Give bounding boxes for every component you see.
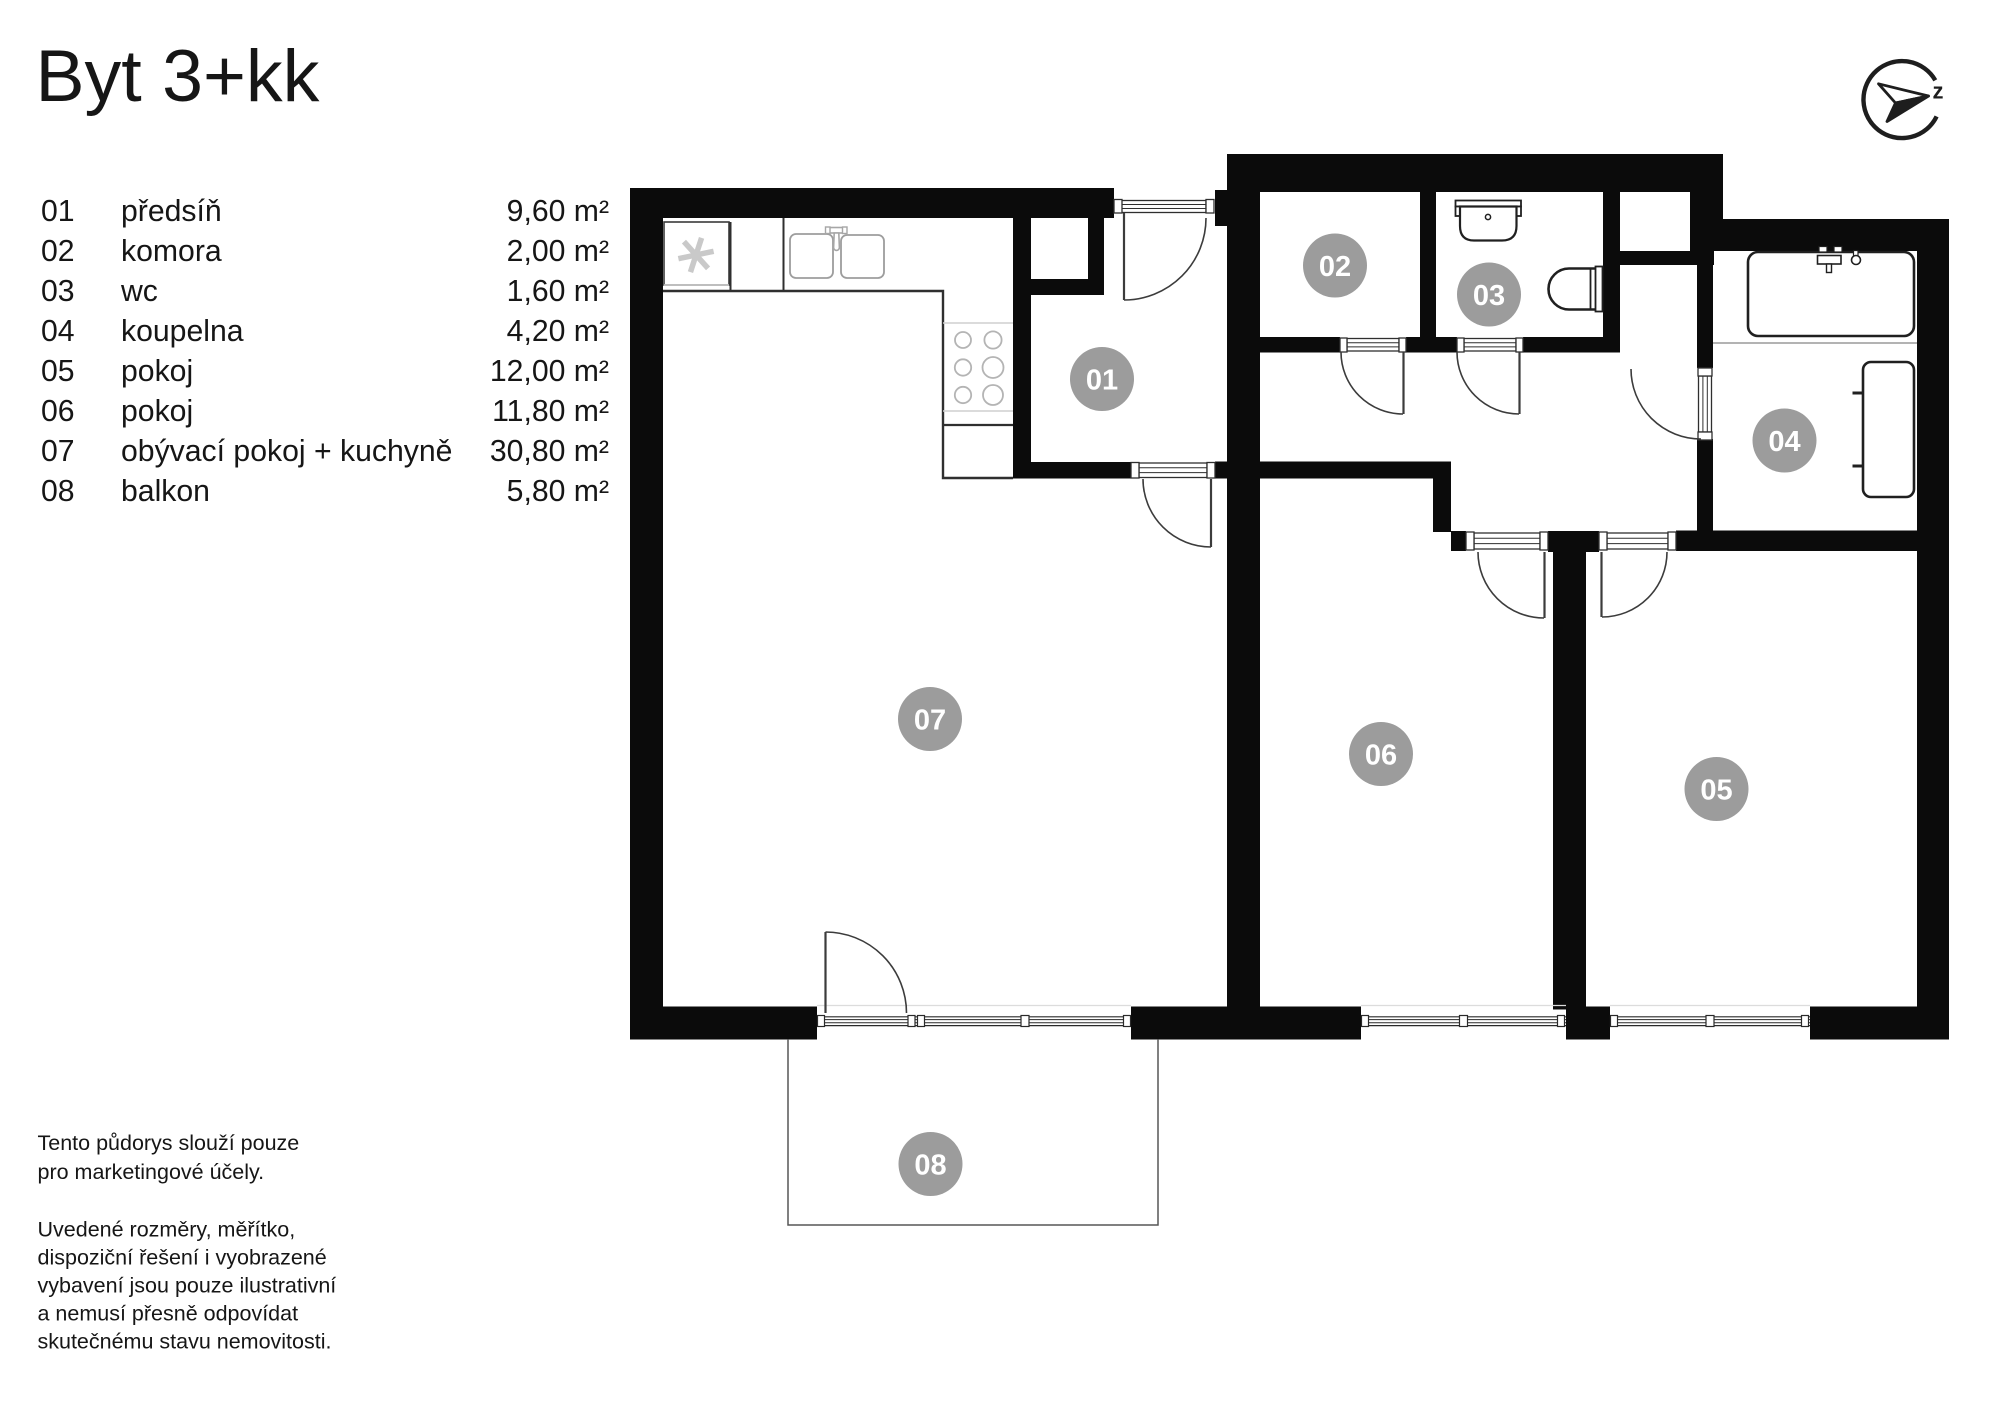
svg-text:předsíň: předsíň <box>121 195 222 228</box>
svg-text:komora: komora <box>121 235 222 268</box>
svg-text:Tento půdorys slouží pouze: Tento půdorys slouží pouze <box>38 1131 300 1155</box>
svg-text:4,20 m²: 4,20 m² <box>507 315 609 348</box>
svg-text:05: 05 <box>1700 775 1732 807</box>
svg-text:wc: wc <box>120 275 158 308</box>
svg-text:07: 07 <box>914 705 946 737</box>
svg-text:2,00 m²: 2,00 m² <box>507 235 609 268</box>
svg-text:vybavení jsou pouze ilustrativ: vybavení jsou pouze ilustrativní <box>38 1274 337 1298</box>
svg-text:06: 06 <box>41 395 75 428</box>
svg-text:05: 05 <box>41 355 75 388</box>
svg-text:30,80 m²: 30,80 m² <box>490 435 609 468</box>
svg-text:1,60 m²: 1,60 m² <box>507 275 609 308</box>
svg-text:5,80 m²: 5,80 m² <box>507 475 609 508</box>
svg-text:Uvedené rozměry, měřítko,: Uvedené rozměry, měřítko, <box>38 1218 296 1242</box>
svg-text:skutečnému stavu nemovitosti.: skutečnému stavu nemovitosti. <box>38 1330 332 1354</box>
svg-text:04: 04 <box>1768 426 1800 458</box>
svg-text:12,00 m²: 12,00 m² <box>490 355 609 388</box>
svg-text:obývací pokoj + kuchyně: obývací pokoj + kuchyně <box>121 435 452 468</box>
svg-text:a nemusí přesně odpovídat: a nemusí přesně odpovídat <box>38 1302 299 1326</box>
svg-text:08: 08 <box>914 1150 946 1182</box>
svg-text:02: 02 <box>1319 251 1351 283</box>
svg-text:dispoziční řešení i vyobrazené: dispoziční řešení i vyobrazené <box>38 1246 327 1270</box>
svg-text:pokoj: pokoj <box>121 355 193 388</box>
svg-text:balkon: balkon <box>121 475 210 508</box>
svg-text:11,80 m²: 11,80 m² <box>492 395 609 428</box>
svg-text:03: 03 <box>1473 280 1505 312</box>
svg-text:01: 01 <box>1086 365 1118 397</box>
svg-text:z: z <box>1933 79 1944 104</box>
svg-text:07: 07 <box>41 435 75 468</box>
svg-text:koupelna: koupelna <box>121 315 244 348</box>
svg-text:Byt 3+kk: Byt 3+kk <box>36 34 320 117</box>
svg-text:02: 02 <box>41 235 75 268</box>
svg-text:08: 08 <box>41 475 75 508</box>
svg-text:04: 04 <box>41 315 75 348</box>
svg-text:01: 01 <box>41 195 75 228</box>
svg-text:9,60 m²: 9,60 m² <box>507 195 609 228</box>
svg-text:03: 03 <box>41 275 75 308</box>
svg-text:pro marketingové účely.: pro marketingové účely. <box>38 1160 265 1184</box>
svg-text:06: 06 <box>1365 740 1397 772</box>
svg-text:pokoj: pokoj <box>121 395 193 428</box>
